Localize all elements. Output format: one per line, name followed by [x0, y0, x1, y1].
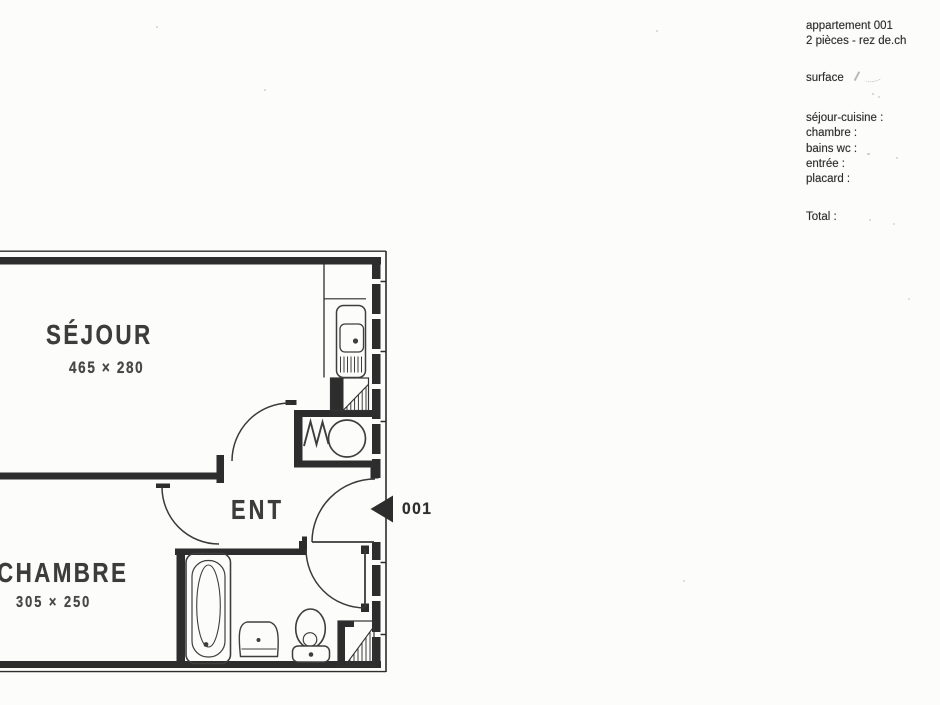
floor-plan: SÉJOUR 465 × 280 CHAMBRE 305 × 250 ENT — [0, 0, 450, 705]
wall-top — [0, 257, 381, 265]
scan-speck — [867, 153, 870, 155]
scan-speck — [683, 580, 685, 582]
apartment-info-panel: appartement 001 2 pièces - rez de.ch sur… — [806, 0, 940, 250]
scan-speck — [908, 298, 910, 300]
scan-speck — [896, 157, 898, 159]
wall-sejour-chambre — [0, 473, 224, 480]
scan-speck — [872, 93, 874, 95]
drainboard-hatch — [341, 357, 362, 373]
entrance-arrow-icon — [371, 496, 394, 523]
door-arc-bathroom — [306, 549, 365, 608]
wall-bath-divider — [177, 549, 186, 664]
room-label-entree: ENT — [231, 496, 284, 524]
room-dims-chambre: 305 × 250 — [16, 595, 91, 611]
water-heater — [304, 420, 366, 457]
total-label: Total : — [806, 210, 837, 224]
toilet — [293, 609, 330, 662]
door-arc-entrance — [312, 479, 375, 542]
unit-number-label: 001 — [402, 501, 432, 518]
tub-drain — [204, 642, 209, 647]
scan-speck — [893, 223, 895, 225]
scan-speck — [869, 219, 871, 221]
row-placard: placard : — [806, 172, 883, 187]
row-bains-wc: bains wc : — [806, 142, 883, 157]
wall-closet-bottom — [294, 461, 373, 468]
heater-zigzag-symbol — [304, 422, 329, 447]
room-label-sejour: SÉJOUR — [46, 321, 153, 349]
scan-speck — [656, 30, 658, 32]
bathtub — [186, 554, 231, 664]
surface-label: surface — [806, 71, 844, 85]
apartment-type-line: 2 pièces - rez de.ch — [806, 34, 906, 48]
row-sejour-cuisine: séjour-cuisine : — [806, 111, 883, 126]
scan-speck — [156, 26, 158, 28]
surface-rows: séjour-cuisine : chambre : bains wc : en… — [806, 111, 883, 187]
wall-jamb — [217, 455, 225, 483]
washbasin — [239, 622, 278, 657]
room-dims-sejour: 465 × 280 — [69, 360, 144, 377]
room-label-chambre: CHAMBRE — [0, 559, 128, 587]
kitchen-counter — [337, 306, 366, 378]
row-entree: entrée : — [806, 157, 883, 172]
row-chambre: chambre : — [806, 126, 883, 141]
apartment-title: appartement 001 — [806, 19, 893, 33]
door-arc-chambre — [162, 487, 219, 544]
kitchen-sink — [340, 324, 364, 352]
door-arc-sejour — [232, 403, 290, 461]
wall-closet-left — [294, 410, 303, 467]
sink-drain — [353, 338, 358, 343]
scan-speck — [264, 89, 266, 91]
scanned-floorplan-page: appartement 001 2 pièces - rez de.ch sur… — [0, 0, 940, 705]
scan-speck — [878, 96, 880, 98]
